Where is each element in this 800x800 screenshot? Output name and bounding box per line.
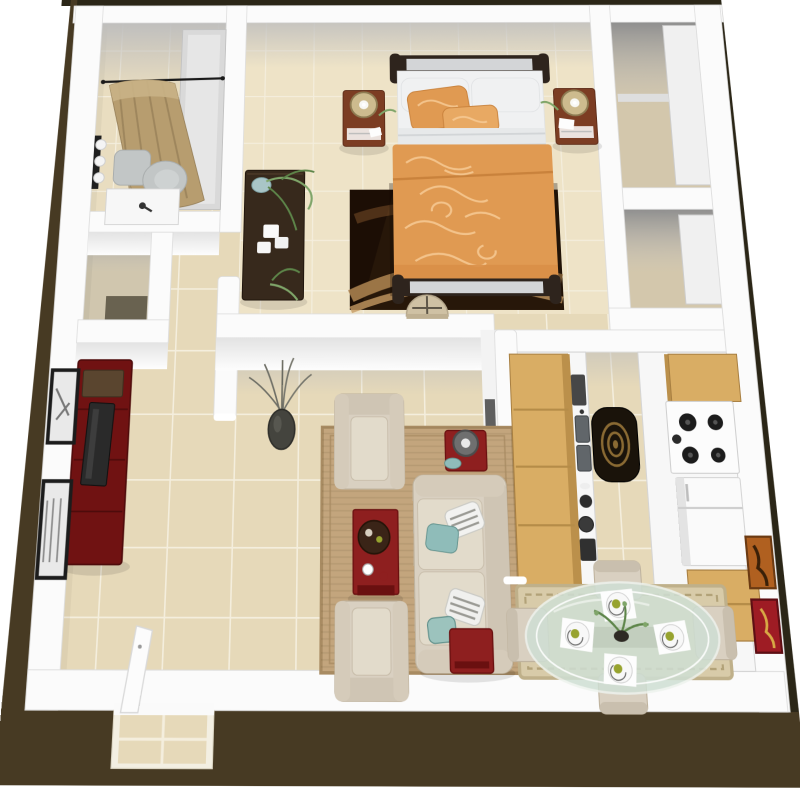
bedpost — [548, 275, 561, 304]
framed-art-orange — [745, 537, 775, 589]
white-box — [257, 242, 271, 254]
seat-cushion — [351, 417, 388, 481]
wall-closets-south — [609, 308, 724, 330]
armchair-north — [334, 394, 404, 489]
dish-stack — [580, 539, 597, 561]
place-setting-west — [559, 618, 597, 653]
floor-vase — [268, 409, 295, 449]
sink-basin — [577, 445, 592, 471]
armrest — [393, 601, 409, 701]
floorplan-scene — [0, 0, 800, 800]
armrest — [334, 394, 348, 489]
round-tray — [358, 521, 390, 554]
closet-top-rod — [618, 94, 670, 102]
note-pad — [558, 118, 574, 130]
framed-art-west-2 — [37, 481, 72, 578]
hall-wall-end-cap — [214, 414, 237, 421]
footboard-panel — [410, 281, 544, 293]
place-setting-east — [653, 620, 691, 655]
wall-light-bulb — [93, 173, 104, 183]
armrest — [335, 601, 350, 701]
floorplan-3d-wrapper — [0, 0, 800, 793]
partition-end-cap — [503, 576, 527, 584]
wall-bedroom-south — [216, 314, 494, 338]
bedpost — [392, 275, 404, 304]
dark-bowl — [578, 517, 594, 532]
white-box — [275, 237, 289, 249]
wall-kitchen-north — [494, 330, 726, 352]
framed-art-west-1 — [47, 370, 78, 443]
storage-closet-opening — [105, 296, 148, 320]
armrest — [389, 394, 404, 489]
red-side-table-with-lamp — [444, 430, 487, 470]
wall-light-bulb — [95, 140, 106, 150]
wall-light-bulb — [94, 156, 105, 166]
teal-bowl — [444, 458, 461, 469]
sleigh-bed — [390, 53, 562, 304]
candle — [363, 564, 374, 575]
media-box — [82, 370, 124, 397]
wall-north — [73, 5, 723, 23]
seat-cushion — [352, 608, 391, 675]
headboard-panel — [406, 59, 532, 71]
upper-cabinets-east — [668, 354, 741, 401]
black-spiral-rug — [591, 408, 641, 482]
range-stove — [666, 401, 740, 473]
armchair-south — [335, 601, 409, 701]
red-coffee-table — [348, 510, 403, 607]
floorplan-svg — [0, 0, 800, 793]
teal-pillow-north — [425, 523, 459, 554]
wall-storage-closet-south — [76, 320, 169, 343]
dish-rack — [571, 375, 587, 406]
white-box — [263, 225, 279, 238]
place-setting-south — [602, 653, 639, 687]
wall-closet-divider — [622, 188, 713, 210]
espresso-dresser — [240, 170, 314, 310]
partition-niche-1 — [485, 399, 496, 428]
wall-bedroom-south-face — [215, 338, 496, 371]
refrigerator — [676, 478, 748, 566]
sofa-armrest-north — [415, 475, 505, 497]
framed-art-red — [751, 600, 782, 653]
red-accent-stool — [450, 629, 494, 673]
sink-basin — [575, 416, 590, 442]
